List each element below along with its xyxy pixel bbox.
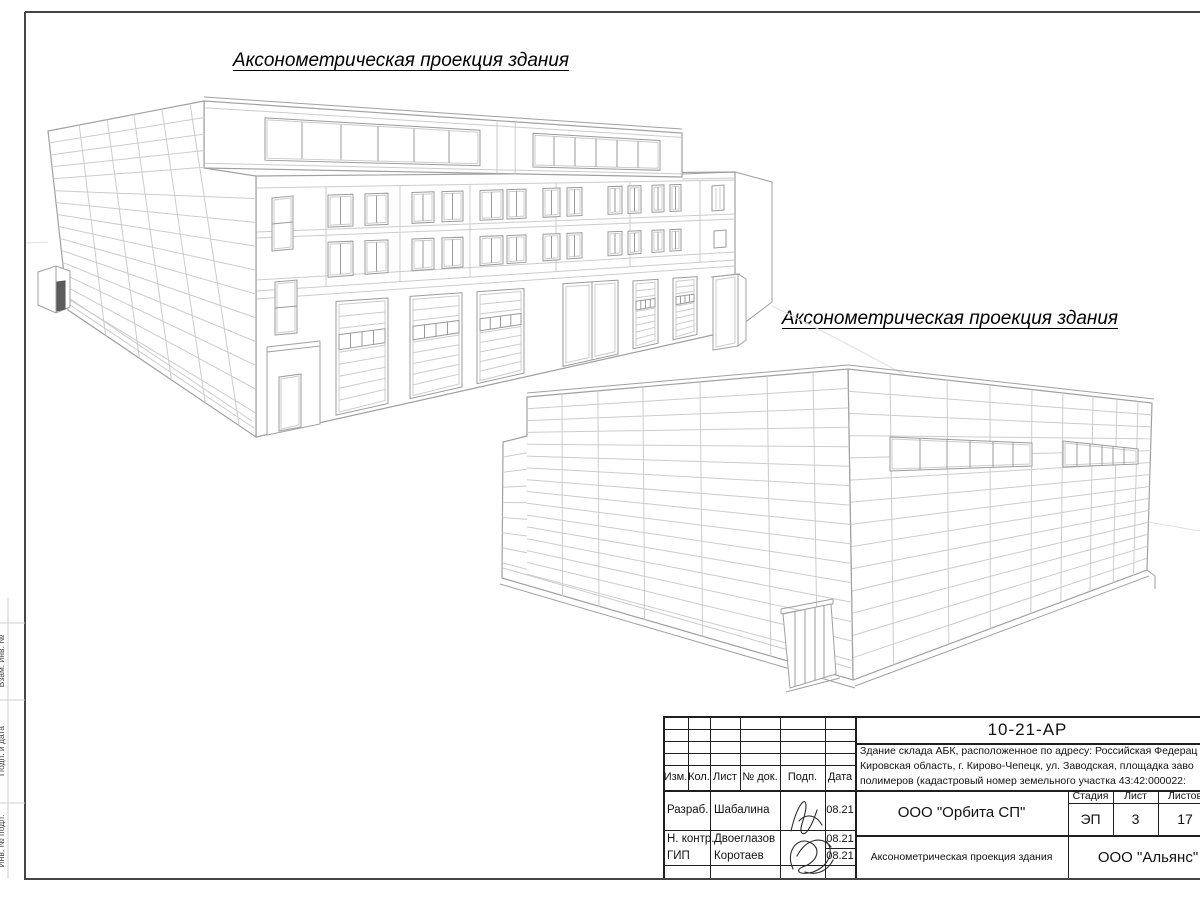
title-block-line	[663, 741, 855, 742]
projection-title-2: Аксонометрическая проекция здания	[778, 308, 1122, 330]
stamp-role-nkontr: Н. контр.	[667, 830, 710, 848]
stamp-org: ООО "Орбита СП"	[855, 790, 1068, 835]
stamp-sheet-label: Лист	[1113, 790, 1158, 803]
title-block-line	[710, 716, 711, 880]
garage-doors	[336, 277, 697, 416]
stamp-stage-label: Стадия	[1068, 790, 1113, 803]
building-2-drawing	[500, 365, 1155, 692]
col-header-data: Дата	[825, 765, 855, 790]
vestibule-left	[267, 341, 320, 435]
stamp-description-line-1: Здание склада АБК, расположенное по адре…	[860, 744, 1197, 759]
stamp-name-dvoeglazov: Двоеглазов	[714, 830, 780, 848]
warehouse-entry	[781, 599, 840, 692]
col-header-list: Лист	[710, 765, 740, 790]
title-block-line	[663, 753, 855, 754]
stamp-description-line-3: полимеров (кадастровый номер земельного …	[860, 774, 1186, 789]
col-header-podp: Подп.	[780, 765, 825, 790]
stamp-role-razrab: Разраб.	[667, 790, 710, 830]
stamp-date-2: 08.21	[825, 830, 855, 848]
front-panel-wall	[500, 365, 855, 688]
stamp-sheets-total: 17	[1158, 803, 1200, 835]
title-block-line	[663, 729, 855, 730]
title-block: Изм. Кол. Лист № док. Подп. Дата Разраб.…	[663, 716, 1200, 880]
margin-label: Подп. и дата	[0, 726, 6, 776]
stamp-description-line-2: Кировская область, г. Кирово-Чепецк, ул.…	[860, 759, 1194, 774]
stamp-name-korotaev: Коротаев	[714, 848, 780, 865]
stamp-date-1: 08.21	[825, 790, 855, 830]
title-block-line	[780, 716, 781, 880]
margin-column: Взам. инв. №Подп. и датаИнв. № подл.	[0, 598, 25, 879]
vestibule-right	[711, 274, 746, 350]
facade-windows	[272, 184, 726, 335]
stamp-role-gip: ГИП	[667, 848, 710, 865]
stamp-name-shabalina: Шабалина	[714, 790, 780, 830]
clerestory-windows	[890, 437, 1138, 471]
left-panel-wall	[48, 101, 256, 437]
back-porch	[38, 266, 70, 313]
col-header-kol: Кол.	[688, 765, 710, 790]
margin-label: Инв. № подл.	[0, 815, 6, 868]
col-header-izm: Изм.	[663, 765, 688, 790]
stamp-company: ООО "Альянс"	[1068, 835, 1200, 880]
drawing-sheet: { "sheet": { "projection_title": "Аксоно…	[0, 0, 1200, 900]
stamp-stage-value: ЭП	[1068, 803, 1113, 835]
ground-lines	[25, 242, 1200, 531]
title-block-line	[663, 865, 855, 866]
stamp-sheets-label: Листов	[1158, 790, 1200, 803]
col-header-ndok: № док.	[740, 765, 780, 790]
projection-title-1: Аксонометрическая проекция здания	[230, 50, 572, 72]
stamp-date-3: 08.21	[825, 848, 855, 865]
margin-label: Взам. инв. №	[0, 635, 6, 688]
stamp-doc-number: 10-21-АР	[855, 716, 1200, 743]
building-1-drawing	[38, 97, 772, 437]
penthouse-level	[204, 97, 735, 179]
stamp-sheet-number: 3	[1113, 803, 1158, 835]
stamp-drawing-title: Аксонометрическая проекция здания	[855, 835, 1068, 880]
